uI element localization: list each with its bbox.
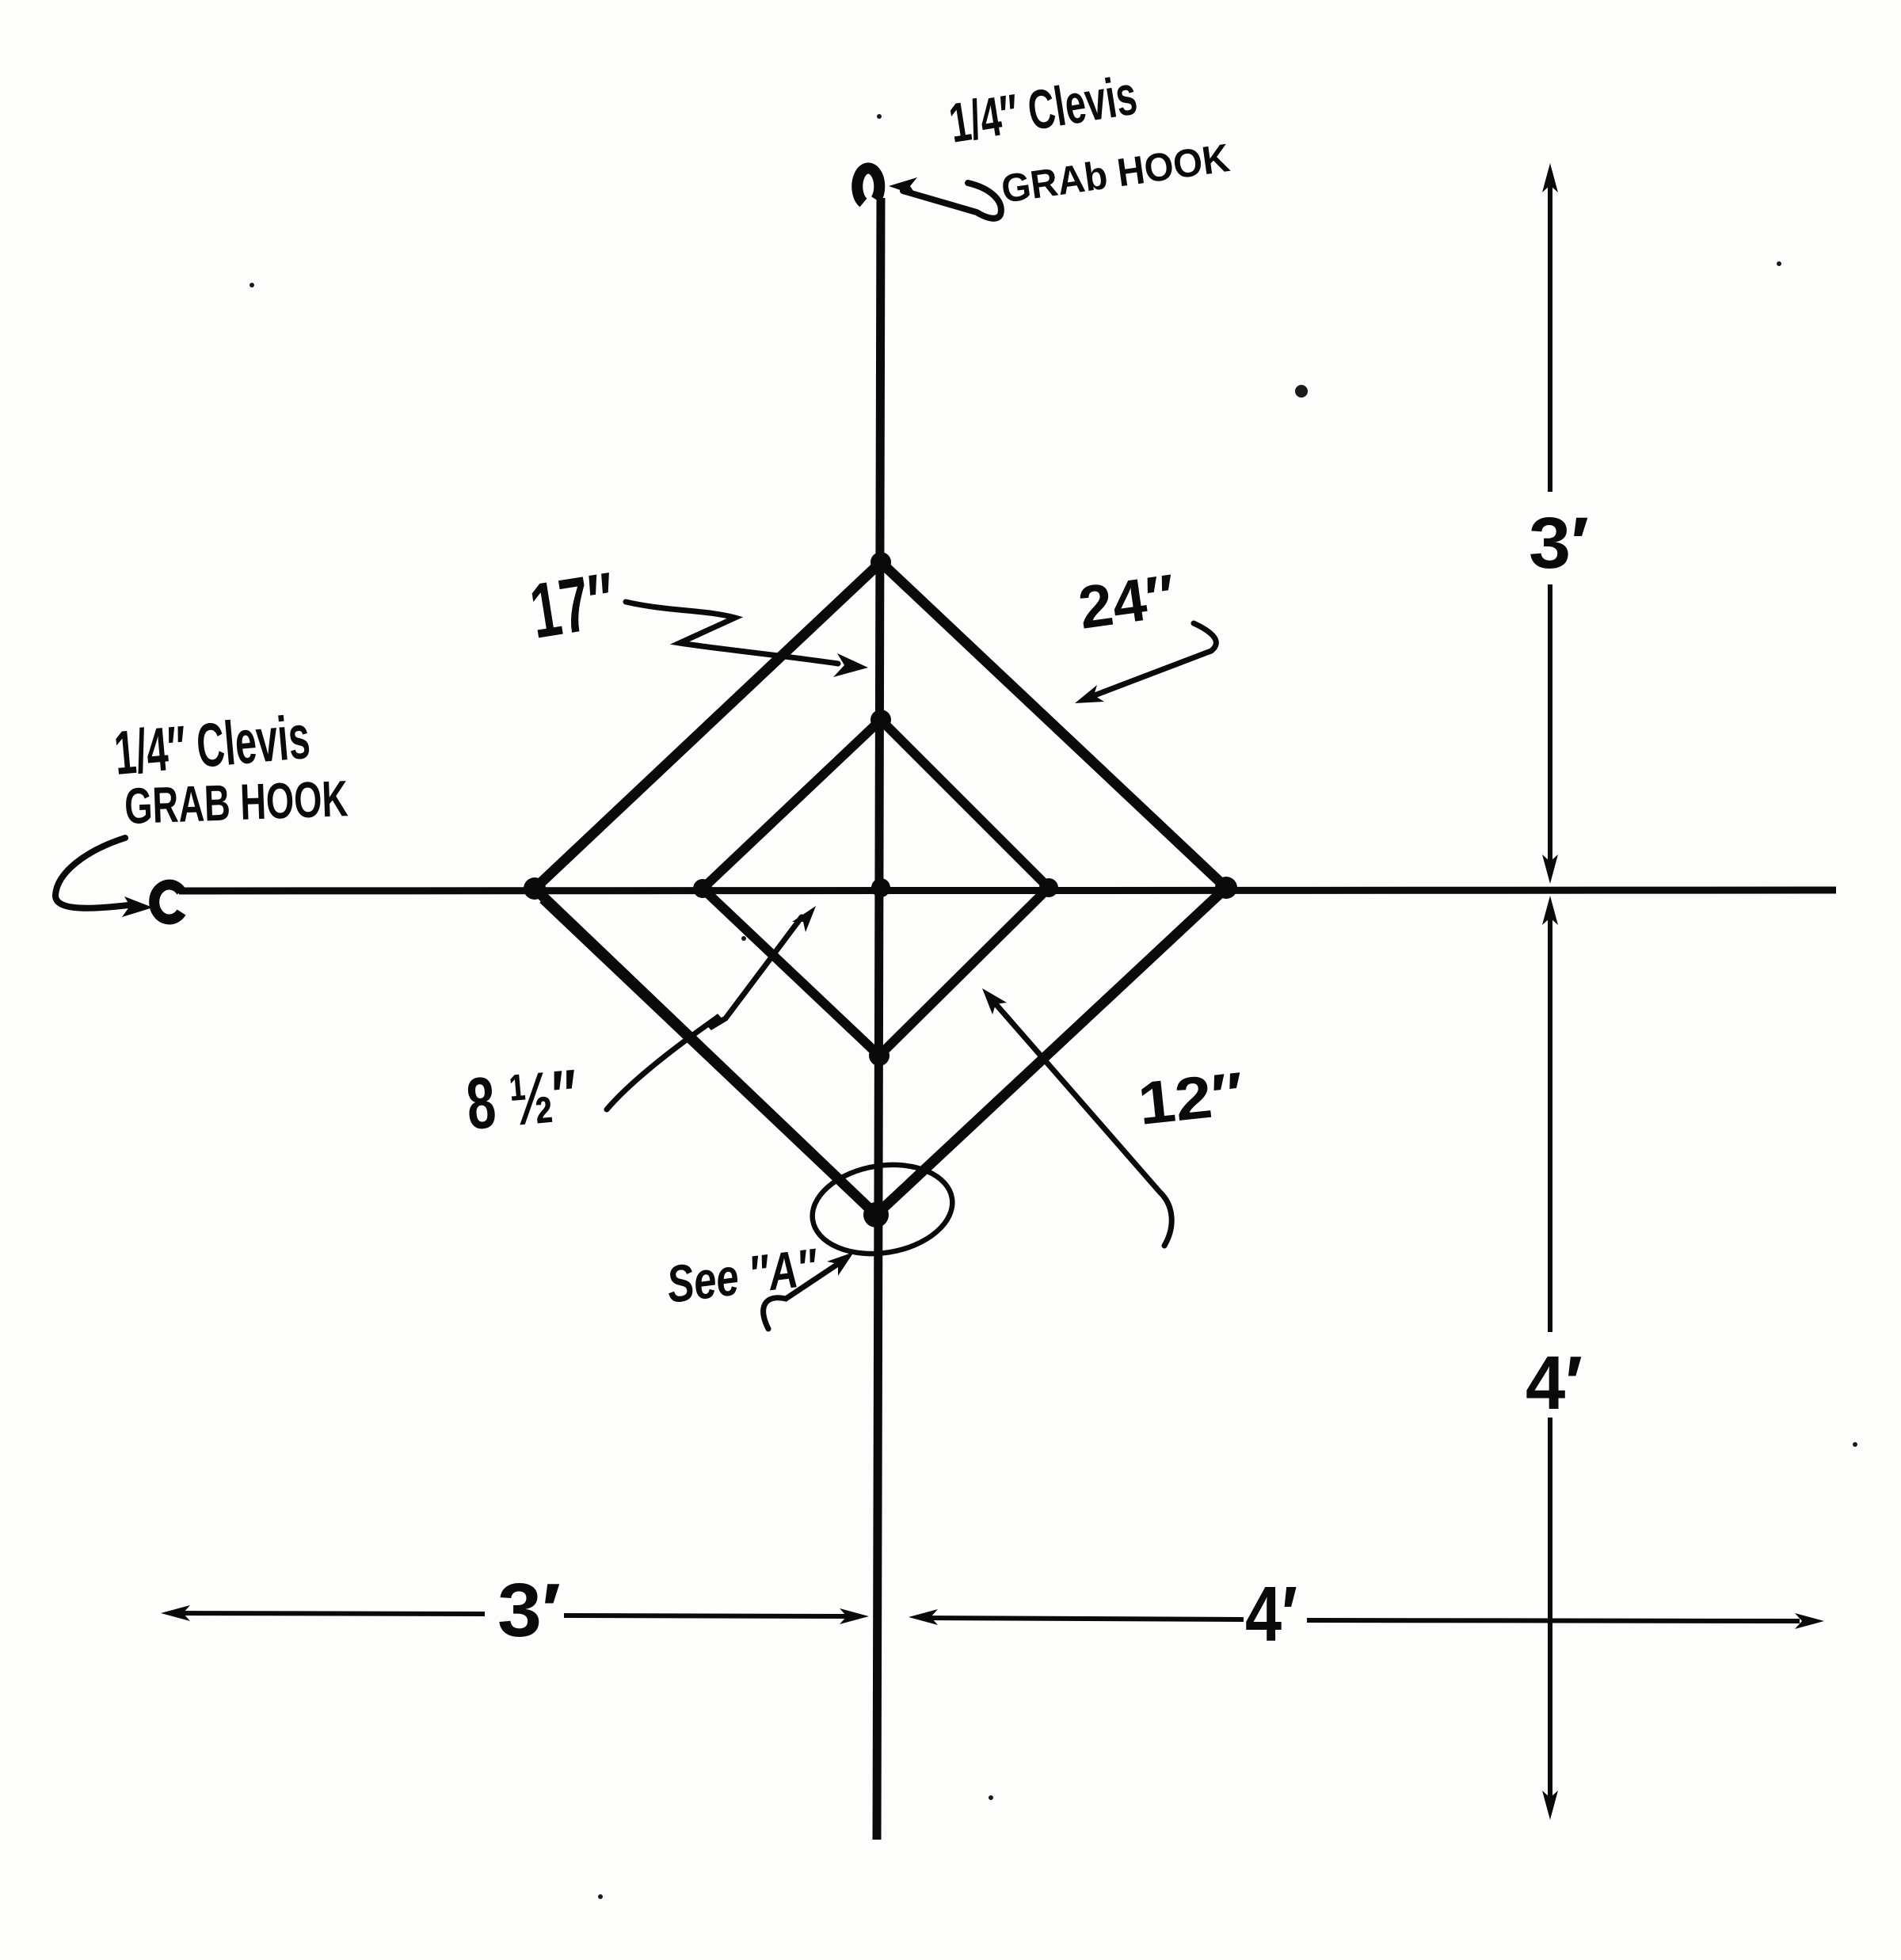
svg-text:24″: 24″ — [1075, 562, 1180, 642]
svg-text:12″: 12″ — [1135, 1060, 1247, 1137]
svg-text:17″: 17″ — [524, 556, 621, 655]
svg-text:3′: 3′ — [1529, 503, 1589, 584]
svg-text:4′: 4′ — [1245, 1570, 1297, 1657]
svg-text:3′: 3′ — [497, 1568, 561, 1653]
svg-text:GRAB HOOK: GRAB HOOK — [124, 770, 349, 835]
svg-text:4′: 4′ — [1526, 1341, 1583, 1425]
svg-text:8 ½″: 8 ½″ — [463, 1055, 581, 1145]
